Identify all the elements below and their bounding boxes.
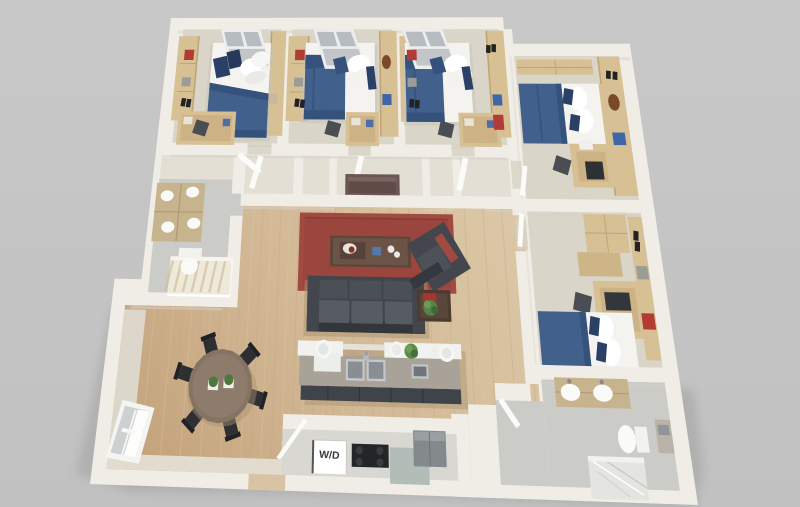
svg-text:W/D: W/D bbox=[319, 449, 341, 462]
